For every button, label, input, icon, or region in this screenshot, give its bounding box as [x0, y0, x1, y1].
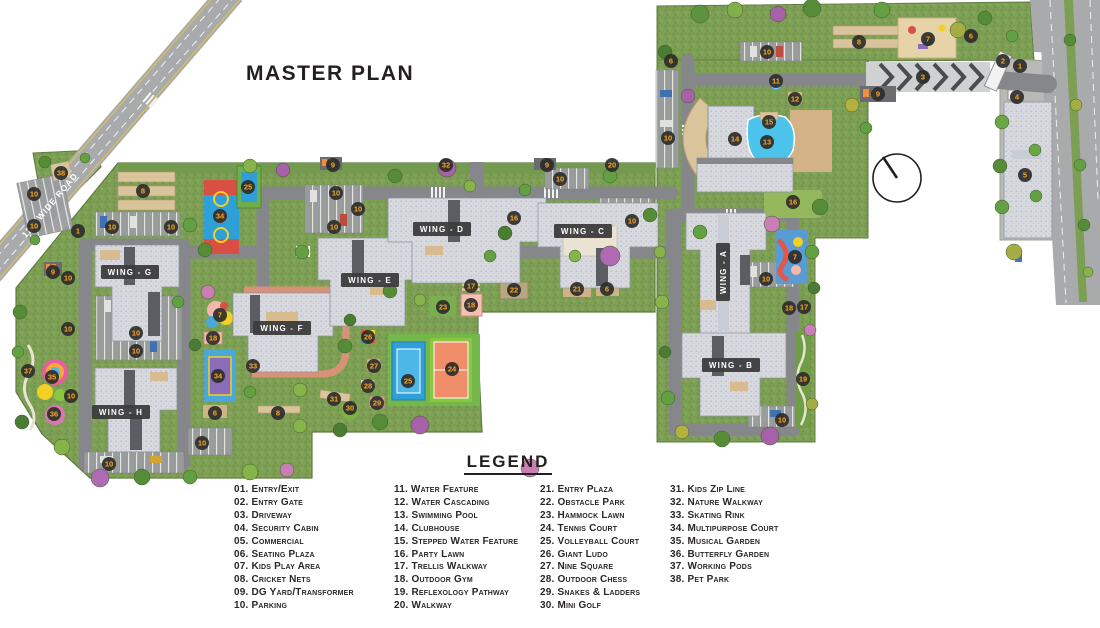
- svg-text:23: 23: [439, 303, 447, 312]
- map-marker-31: 31: [327, 392, 341, 406]
- map-marker-10: 10: [61, 271, 75, 285]
- svg-text:20: 20: [608, 161, 616, 170]
- map-marker-15: 15: [762, 115, 776, 129]
- wing-label: WING - D: [413, 222, 471, 236]
- map-marker-10: 10: [195, 436, 209, 450]
- svg-text:WING - E: WING - E: [348, 276, 392, 285]
- svg-text:17: 17: [467, 282, 475, 291]
- map-marker-25: 25: [401, 374, 415, 388]
- svg-text:8: 8: [857, 38, 861, 47]
- legend-item: 28. Outdoor Chess: [540, 574, 640, 587]
- legend-item: 34. Multipurpose Court: [670, 523, 779, 536]
- map-marker-23: 23: [436, 300, 450, 314]
- legend-item: 02. Entry Gate: [234, 497, 354, 510]
- svg-text:10: 10: [132, 329, 140, 338]
- master-plan-screenshot: 12M WIDE ROAD WING - GWING - HWING - FWI…: [0, 0, 1100, 628]
- map-marker-10: 10: [759, 272, 773, 286]
- svg-text:9: 9: [51, 268, 55, 277]
- map-marker-37: 37: [21, 364, 35, 378]
- svg-text:14: 14: [731, 135, 740, 144]
- legend-item: 22. Obstacle Park: [540, 497, 640, 510]
- legend-item: 10. Parking: [234, 600, 354, 613]
- legend-item: 03. Driveway: [234, 510, 354, 523]
- map-marker-10: 10: [164, 220, 178, 234]
- legend-title: LEGEND: [464, 452, 553, 475]
- svg-text:9: 9: [545, 161, 549, 170]
- map-marker-28: 28: [361, 379, 375, 393]
- svg-text:WING - G: WING - G: [108, 268, 153, 277]
- svg-text:WING - F: WING - F: [260, 324, 303, 333]
- legend-item: 11. Water Feature: [394, 484, 518, 497]
- map-marker-21: 21: [570, 282, 584, 296]
- map-marker-24: 24: [445, 362, 459, 376]
- svg-text:7: 7: [793, 253, 797, 262]
- svg-text:13: 13: [763, 138, 771, 147]
- svg-text:8: 8: [141, 187, 145, 196]
- legend-item: 31. Kids Zip Line: [670, 484, 779, 497]
- map-marker-9: 9: [871, 87, 885, 101]
- map-marker-8: 8: [271, 406, 285, 420]
- svg-text:1: 1: [76, 227, 80, 236]
- map-marker-1: 1: [1013, 59, 1027, 73]
- svg-text:9: 9: [876, 90, 880, 99]
- map-marker-10: 10: [760, 45, 774, 59]
- map-marker-16: 16: [786, 195, 800, 209]
- svg-text:2: 2: [1001, 57, 1005, 66]
- map-marker-6: 6: [964, 29, 978, 43]
- svg-text:24: 24: [448, 365, 457, 374]
- wing-label: WING - G: [101, 265, 159, 279]
- svg-text:10: 10: [332, 189, 340, 198]
- svg-text:10: 10: [167, 223, 175, 232]
- map-marker-10: 10: [129, 326, 143, 340]
- svg-text:WING - D: WING - D: [420, 225, 464, 234]
- compass: [873, 154, 921, 202]
- svg-text:9: 9: [331, 161, 335, 170]
- legend-item: 37. Working Pods: [670, 561, 779, 574]
- map-marker-5: 5: [1018, 168, 1032, 182]
- legend-item: 32. Nature Walkway: [670, 497, 779, 510]
- map-marker-6: 6: [208, 406, 222, 420]
- svg-text:37: 37: [24, 367, 32, 376]
- svg-text:10: 10: [778, 416, 786, 425]
- svg-text:18: 18: [467, 301, 475, 310]
- map-marker-16: 16: [507, 211, 521, 225]
- map-marker-9: 9: [326, 158, 340, 172]
- legend-item: 20. Walkway: [394, 600, 518, 613]
- map-marker-10: 10: [27, 187, 41, 201]
- legend-item: 17. Trellis Walkway: [394, 561, 518, 574]
- legend-item: 13. Swimming Pool: [394, 510, 518, 523]
- legend-item: 36. Butterfly Garden: [670, 549, 779, 562]
- map-marker-8: 8: [136, 184, 150, 198]
- svg-text:38: 38: [57, 169, 65, 178]
- map-marker-35: 35: [45, 370, 59, 384]
- map-marker-12: 12: [788, 92, 802, 106]
- legend-item: 14. Clubhouse: [394, 523, 518, 536]
- legend-columns: 01. Entry/Exit02. Entry Gate03. Driveway…: [228, 484, 788, 619]
- map-marker-10: 10: [775, 413, 789, 427]
- svg-text:10: 10: [30, 222, 38, 231]
- map-marker-18: 18: [464, 298, 478, 312]
- legend-item: 23. Hammock Lawn: [540, 510, 640, 523]
- svg-text:34: 34: [216, 212, 225, 221]
- svg-text:21: 21: [573, 285, 581, 294]
- svg-text:25: 25: [404, 377, 412, 386]
- map-marker-6: 6: [664, 54, 678, 68]
- wing-label: WING - A: [716, 243, 730, 301]
- svg-text:6: 6: [605, 285, 609, 294]
- map-marker-2: 2: [996, 54, 1010, 68]
- svg-text:10: 10: [132, 347, 140, 356]
- legend-item: 30. Mini Golf: [540, 600, 640, 613]
- svg-text:10: 10: [64, 274, 72, 283]
- map-marker-19: 19: [796, 372, 810, 386]
- svg-text:28: 28: [364, 382, 372, 391]
- legend-item: 29. Snakes & Ladders: [540, 587, 640, 600]
- wing-label: WING - F: [253, 321, 311, 335]
- legend-item: 19. Reflexology Pathway: [394, 587, 518, 600]
- map-marker-10: 10: [329, 186, 343, 200]
- svg-text:22: 22: [510, 286, 518, 295]
- map-marker-1: 1: [71, 224, 85, 238]
- map-marker-4: 4: [1010, 90, 1024, 104]
- svg-text:34: 34: [214, 372, 223, 381]
- svg-text:WING - H: WING - H: [99, 408, 143, 417]
- map-marker-17: 17: [797, 300, 811, 314]
- map-marker-7: 7: [213, 308, 227, 322]
- svg-text:WING - C: WING - C: [561, 227, 605, 236]
- map-marker-20: 20: [605, 158, 619, 172]
- legend-item: 24. Tennis Court: [540, 523, 640, 536]
- svg-text:10: 10: [664, 134, 672, 143]
- svg-text:25: 25: [244, 183, 252, 192]
- legend-item: 06. Seating Plaza: [234, 549, 354, 562]
- legend-item: 05. Commercial: [234, 536, 354, 549]
- legend-item: 01. Entry/Exit: [234, 484, 354, 497]
- svg-text:31: 31: [330, 395, 338, 404]
- map-marker-17: 17: [464, 279, 478, 293]
- map-marker-3: 3: [916, 70, 930, 84]
- svg-text:19: 19: [799, 375, 807, 384]
- svg-text:10: 10: [354, 205, 362, 214]
- map-marker-27: 27: [367, 359, 381, 373]
- legend: LEGEND 01. Entry/Exit02. Entry Gate03. D…: [228, 452, 788, 619]
- svg-text:5: 5: [1023, 171, 1027, 180]
- map-marker-32: 32: [439, 158, 453, 172]
- svg-text:32: 32: [442, 161, 450, 170]
- svg-text:16: 16: [510, 214, 518, 223]
- svg-text:15: 15: [765, 118, 773, 127]
- clubhouse-building: [697, 158, 793, 192]
- legend-column: 11. Water Feature12. Water Cascading13. …: [394, 484, 518, 613]
- svg-text:10: 10: [762, 275, 770, 284]
- legend-item: 15. Stepped Water Feature: [394, 536, 518, 549]
- svg-text:10: 10: [108, 223, 116, 232]
- map-marker-10: 10: [661, 131, 675, 145]
- legend-item: 38. Pet Park: [670, 574, 779, 587]
- svg-text:3: 3: [921, 73, 925, 82]
- map-marker-30: 30: [343, 401, 357, 415]
- legend-item: 18. Outdoor Gym: [394, 574, 518, 587]
- legend-item: 35. Musical Garden: [670, 536, 779, 549]
- legend-column: 21. Entry Plaza22. Obstacle Park23. Hamm…: [540, 484, 640, 613]
- svg-text:33: 33: [249, 362, 257, 371]
- legend-item: 27. Nine Square: [540, 561, 640, 574]
- map-marker-36: 36: [47, 407, 61, 421]
- svg-text:29: 29: [373, 399, 381, 408]
- map-marker-25: 25: [241, 180, 255, 194]
- map-marker-33: 33: [246, 359, 260, 373]
- map-marker-26: 26: [361, 330, 375, 344]
- svg-text:27: 27: [370, 362, 378, 371]
- svg-text:6: 6: [969, 32, 973, 41]
- legend-item: 16. Party Lawn: [394, 549, 518, 562]
- legend-column: 01. Entry/Exit02. Entry Gate03. Driveway…: [234, 484, 354, 613]
- svg-text:30: 30: [346, 404, 354, 413]
- map-marker-18: 18: [206, 331, 220, 345]
- map-marker-9: 9: [540, 158, 554, 172]
- map-marker-22: 22: [507, 283, 521, 297]
- map-marker-18: 18: [782, 301, 796, 315]
- map-marker-29: 29: [370, 396, 384, 410]
- map-marker-10: 10: [129, 344, 143, 358]
- legend-column: 31. Kids Zip Line32. Nature Walkway33. S…: [670, 484, 779, 587]
- svg-text:6: 6: [669, 57, 673, 66]
- map-marker-9: 9: [46, 265, 60, 279]
- map-marker-8: 8: [852, 35, 866, 49]
- svg-text:10: 10: [30, 190, 38, 199]
- legend-item: 04. Security Cabin: [234, 523, 354, 536]
- map-marker-14: 14: [728, 132, 742, 146]
- svg-text:12: 12: [791, 95, 799, 104]
- legend-item: 21. Entry Plaza: [540, 484, 640, 497]
- map-marker-10: 10: [27, 219, 41, 233]
- svg-text:7: 7: [218, 311, 222, 320]
- map-marker-7: 7: [788, 250, 802, 264]
- legend-item: 08. Cricket Nets: [234, 574, 354, 587]
- svg-text:16: 16: [789, 198, 797, 207]
- map-marker-10: 10: [105, 220, 119, 234]
- wing-label: WING - H: [92, 405, 150, 419]
- svg-text:35: 35: [48, 373, 56, 382]
- svg-text:WING - B: WING - B: [709, 361, 753, 370]
- map-marker-13: 13: [760, 135, 774, 149]
- svg-text:10: 10: [105, 460, 113, 469]
- legend-item: 25. Volleyball Court: [540, 536, 640, 549]
- legend-item: 33. Skating Rink: [670, 510, 779, 523]
- wing-label: WING - E: [341, 273, 399, 287]
- svg-text:10: 10: [64, 325, 72, 334]
- svg-text:10: 10: [67, 392, 75, 401]
- svg-text:7: 7: [926, 35, 930, 44]
- map-marker-34: 34: [211, 369, 225, 383]
- svg-text:1: 1: [1018, 62, 1022, 71]
- svg-text:18: 18: [785, 304, 793, 313]
- svg-text:10: 10: [763, 48, 771, 57]
- map-marker-10: 10: [351, 202, 365, 216]
- map-marker-11: 11: [769, 74, 783, 88]
- svg-text:18: 18: [209, 334, 217, 343]
- svg-text:10: 10: [198, 439, 206, 448]
- svg-text:6: 6: [213, 409, 217, 418]
- wing-label: WING - B: [702, 358, 760, 372]
- page-title: MASTER PLAN: [246, 62, 414, 86]
- legend-item: 26. Giant Ludo: [540, 549, 640, 562]
- wing-label: WING - C: [554, 224, 612, 238]
- map-marker-10: 10: [102, 457, 116, 471]
- legend-item: 12. Water Cascading: [394, 497, 518, 510]
- svg-text:17: 17: [800, 303, 808, 312]
- svg-text:10: 10: [556, 175, 564, 184]
- map-marker-10: 10: [61, 322, 75, 336]
- map-marker-6: 6: [600, 282, 614, 296]
- map-marker-10: 10: [553, 172, 567, 186]
- map-marker-10: 10: [625, 214, 639, 228]
- map-marker-7: 7: [921, 32, 935, 46]
- legend-item: 09. DG Yard/Transformer: [234, 587, 354, 600]
- svg-text:36: 36: [50, 410, 58, 419]
- map-marker-38: 38: [54, 166, 68, 180]
- svg-text:10: 10: [330, 223, 338, 232]
- svg-text:26: 26: [364, 333, 372, 342]
- svg-text:10: 10: [628, 217, 636, 226]
- map-marker-10: 10: [64, 389, 78, 403]
- legend-item: 07. Kids Play Area: [234, 561, 354, 574]
- map-marker-34: 34: [213, 209, 227, 223]
- svg-text:11: 11: [772, 77, 780, 86]
- map-marker-10: 10: [327, 220, 341, 234]
- svg-text:8: 8: [276, 409, 280, 418]
- svg-text:WING - A: WING - A: [719, 250, 728, 294]
